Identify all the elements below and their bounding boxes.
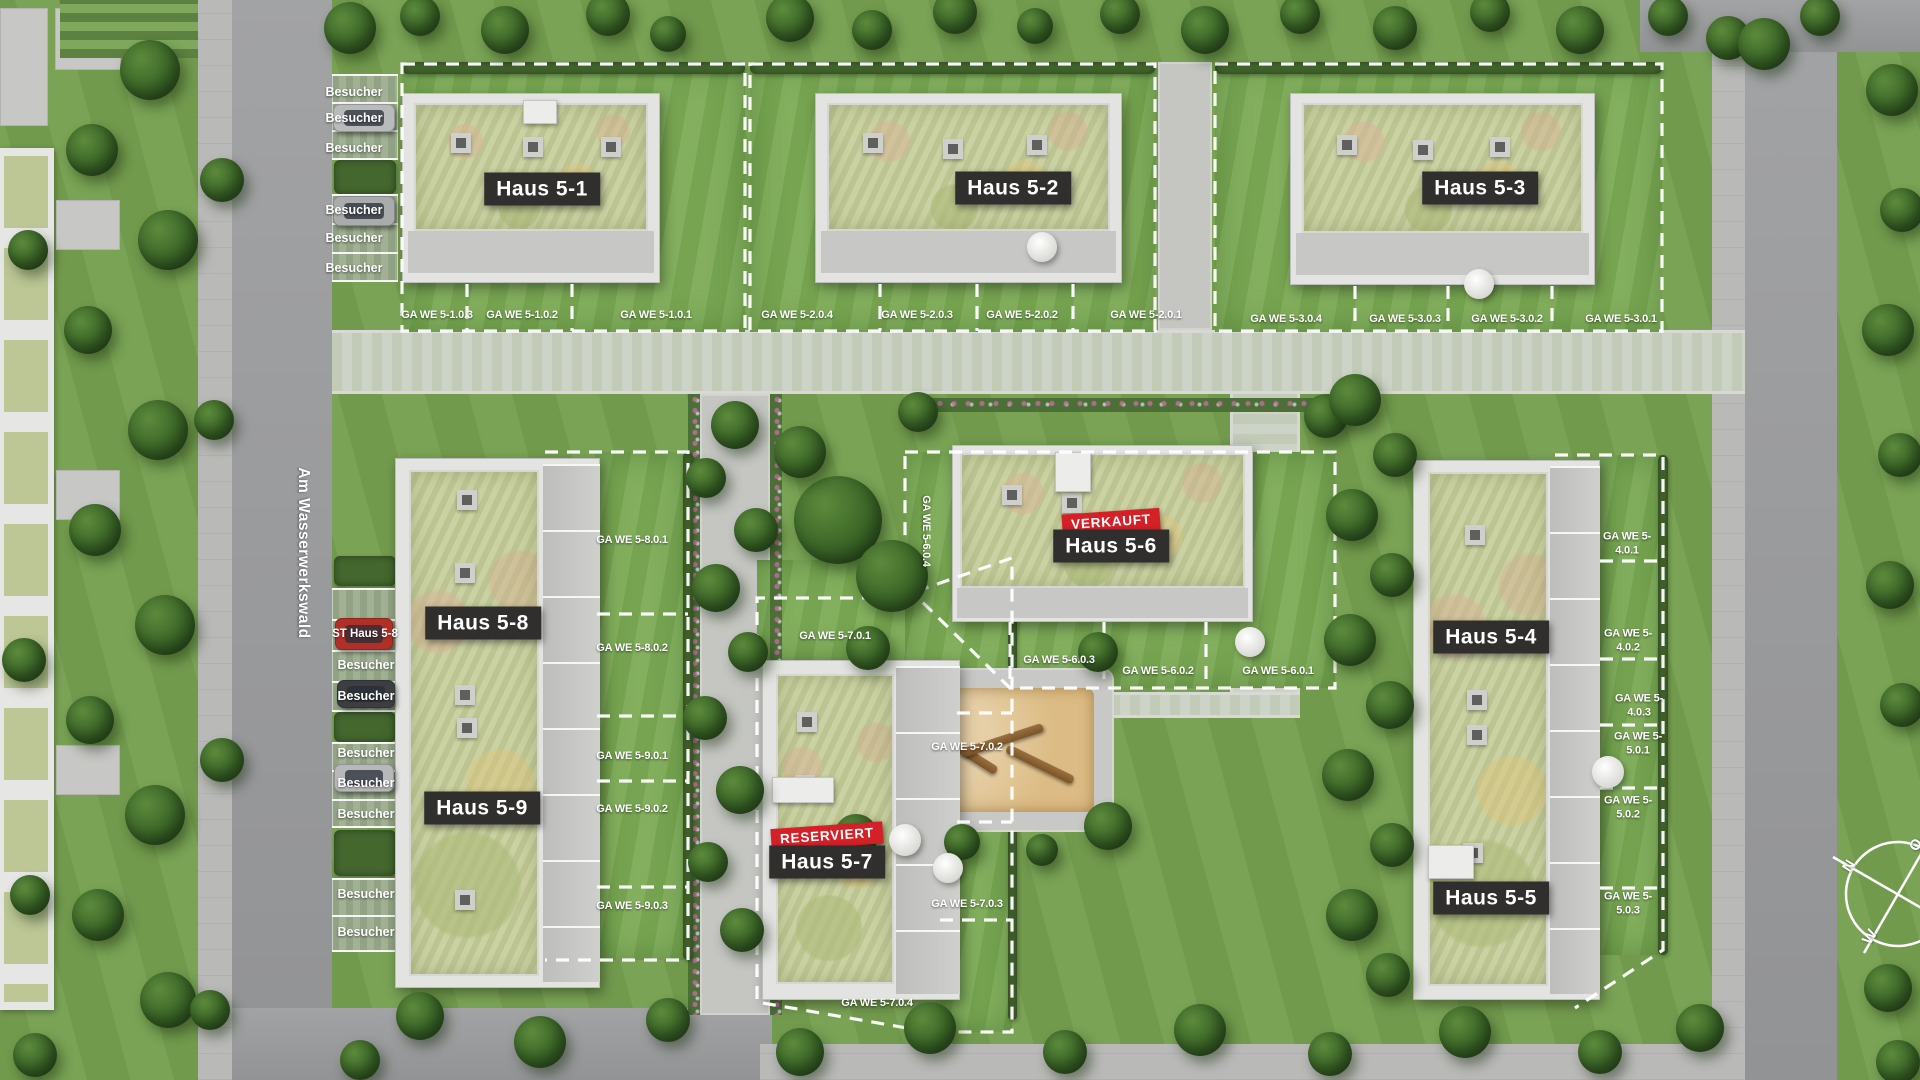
tree [190, 990, 230, 1030]
green-roof [827, 103, 1110, 231]
roof-vent [943, 139, 963, 159]
tree [13, 1033, 57, 1077]
tree [1876, 1040, 1920, 1080]
tree [1738, 18, 1790, 70]
tree [1439, 1006, 1491, 1058]
hedge [334, 556, 396, 586]
tree [1862, 304, 1914, 356]
tree [1324, 614, 1376, 666]
tree [200, 738, 244, 782]
tree [1373, 6, 1417, 50]
building-label-haus-5-3[interactable]: Haus 5-3 [1422, 172, 1538, 205]
roof-vent [1027, 135, 1047, 155]
site-plan: Haus 5-1 Haus 5-2 Haus 5-3 Haus 5-4 Haus… [0, 0, 1920, 1080]
tree [1866, 561, 1914, 609]
tree [1322, 749, 1374, 801]
parasol [889, 824, 921, 856]
tree [650, 16, 686, 52]
roof-vent [455, 563, 475, 583]
tree [688, 842, 728, 882]
tree [1676, 1004, 1724, 1052]
building-label-haus-5-6[interactable]: Haus 5-6 [1053, 530, 1169, 563]
garden-unit-label-5-6-0-1[interactable]: GA WE 5-6.0.1 [1242, 665, 1314, 679]
compass-north-label: N [1839, 857, 1859, 875]
sidewalk-east [1712, 0, 1745, 1080]
garden-unit-label-5-7-0-3[interactable]: GA WE 5-7.0.3 [931, 898, 1003, 912]
tree [734, 508, 778, 552]
roof-vent [1467, 690, 1487, 710]
garden-unit-label-5-6-0-2[interactable]: GA WE 5-6.0.2 [1122, 665, 1194, 679]
terrace-strip [1296, 233, 1589, 275]
tree [1373, 433, 1417, 477]
rooftop-structure [1428, 845, 1474, 879]
garden-unit-label-5-5-0-1[interactable]: GA WE 5-5.0.1 [1611, 730, 1665, 758]
building-label-haus-5-1[interactable]: Haus 5-1 [484, 173, 600, 206]
tree [1470, 0, 1510, 32]
tree [1326, 889, 1378, 941]
roof-vent [1490, 137, 1510, 157]
building-haus-5-4-5[interactable] [1413, 460, 1600, 1000]
rooftop-structure [772, 777, 834, 803]
rooftop-structure [523, 100, 557, 124]
roof-vent [457, 718, 477, 738]
tree [646, 998, 690, 1042]
tree [1174, 1004, 1226, 1056]
garden-unit-label-5-9-0-1[interactable]: GA WE 5-9.0.1 [596, 750, 668, 764]
garden-unit-label-5-2-0-2[interactable]: GA WE 5-2.0.2 [986, 309, 1058, 323]
building-label-haus-5-5[interactable]: Haus 5-5 [1433, 882, 1549, 915]
st-haus-5-8-space-label: ST Haus 5-8 [332, 628, 398, 640]
roof-vent [1002, 485, 1022, 505]
parasol [1464, 269, 1494, 299]
visitor-space-label: Besucher [326, 203, 383, 217]
footpath-north [1158, 62, 1212, 330]
roof-vent [601, 137, 621, 157]
visitor-space-label: Besucher [326, 111, 383, 125]
tree [1556, 6, 1604, 54]
roof-vent [451, 133, 471, 153]
tree [1026, 834, 1058, 866]
garden-unit-label-5-6-0-4[interactable]: GA WE 5-6.0.4 [918, 495, 932, 567]
compass-west-label: W [1859, 926, 1881, 947]
tree [1866, 64, 1918, 116]
tree [586, 0, 630, 36]
tree [125, 785, 185, 845]
hedge [334, 830, 396, 876]
building-haus-5-8-9[interactable] [395, 458, 600, 988]
garden-unit-label-5-9-0-2[interactable]: GA WE 5-9.0.2 [596, 803, 668, 817]
green-roof [1302, 103, 1583, 233]
garden-unit-label-5-1-0-2[interactable]: GA WE 5-1.0.2 [486, 309, 558, 323]
visitor-space-label: Besucher [338, 887, 395, 901]
garden-unit-label-5-5-0-3[interactable]: GA WE 5-5.0.3 [1601, 890, 1655, 918]
gardens-haus-5-8-9 [595, 452, 688, 960]
tree [200, 158, 244, 202]
hedge [334, 712, 396, 742]
hedge [1215, 62, 1662, 74]
tree [400, 0, 440, 36]
tree [716, 766, 764, 814]
tree [138, 210, 198, 270]
tree [1017, 8, 1053, 44]
tree [72, 889, 124, 941]
tree [711, 401, 759, 449]
building-label-haus-5-7[interactable]: Haus 5-7 [769, 846, 885, 879]
neighbour-pergola [56, 200, 120, 250]
neighbour-pergola [56, 745, 120, 795]
tree [728, 632, 768, 672]
parasol [1235, 627, 1265, 657]
tree [1370, 823, 1414, 867]
garden-unit-label-5-8-0-2[interactable]: GA WE 5-8.0.2 [596, 642, 668, 656]
tree [1880, 188, 1920, 232]
garden-unit-label-5-3-0-3[interactable]: GA WE 5-3.0.3 [1369, 313, 1441, 327]
tree [1366, 681, 1414, 729]
parasol [933, 853, 963, 883]
roof-vent [455, 685, 475, 705]
promenade [332, 330, 1745, 394]
garden-unit-label-5-1-0-3[interactable]: GA WE 5-1.0.3 [401, 309, 473, 323]
tree [1878, 433, 1920, 477]
garden-unit-label-5-7-0-2[interactable]: GA WE 5-7.0.2 [931, 741, 1003, 755]
garden-unit-label-5-1-0-1[interactable]: GA WE 5-1.0.1 [620, 309, 692, 323]
tree [1329, 374, 1381, 426]
visitor-space-label: Besucher [338, 925, 395, 939]
neighbour-patio [0, 8, 48, 126]
tree [64, 306, 112, 354]
visitor-space-label: Besucher [338, 658, 395, 672]
street-name-label: Am Wasserwerkswald [294, 467, 312, 638]
garden-unit-label-5-3-0-4[interactable]: GA WE 5-3.0.4 [1250, 313, 1322, 327]
building-label-haus-5-4[interactable]: Haus 5-4 [1433, 621, 1549, 654]
flowerbed-strip [905, 398, 1335, 412]
tree [692, 564, 740, 612]
garden-unit-label-5-6-0-3[interactable]: GA WE 5-6.0.3 [1023, 654, 1095, 668]
garden-unit-label-5-7-0-4[interactable]: GA WE 5-7.0.4 [841, 997, 913, 1011]
tree [481, 6, 529, 54]
tree [852, 10, 892, 50]
garden-unit-label-5-8-0-1[interactable]: GA WE 5-8.0.1 [596, 534, 668, 548]
roof-vent [1413, 140, 1433, 160]
hedge [402, 62, 745, 74]
terrace-strip [957, 588, 1248, 618]
tree [1280, 0, 1320, 34]
roof-vent [1337, 135, 1357, 155]
tree [1181, 6, 1229, 54]
tree [1326, 489, 1378, 541]
garden-unit-label-5-3-0-1[interactable]: GA WE 5-3.0.1 [1585, 313, 1657, 327]
tree [2, 638, 46, 682]
tree [898, 392, 938, 432]
roof-vent [1465, 525, 1485, 545]
tree [1864, 964, 1912, 1012]
tree [720, 908, 764, 952]
visitor-space-label: Besucher [338, 689, 395, 703]
visitor-space-label: Besucher [326, 85, 383, 99]
street-south [232, 1008, 772, 1080]
tree [120, 40, 180, 100]
tree [774, 426, 826, 478]
tree [776, 1028, 824, 1076]
visitor-space-label: Besucher [326, 141, 383, 155]
hedge [750, 62, 1155, 74]
hedge [334, 160, 396, 194]
compass-east-label: O [1906, 836, 1920, 855]
tree [1084, 802, 1132, 850]
roof-vent [863, 133, 883, 153]
tree [514, 1016, 566, 1068]
parasol [1592, 756, 1624, 788]
visitor-space-label: Besucher [326, 231, 383, 245]
tree [1366, 953, 1410, 997]
tree [140, 972, 196, 1028]
terrace-strip [543, 464, 600, 982]
garden-unit-label-5-3-0-2[interactable]: GA WE 5-3.0.2 [1471, 313, 1543, 327]
tree [766, 0, 814, 42]
tree [396, 992, 444, 1040]
tree [10, 875, 50, 915]
visitor-space-label: Besucher [326, 261, 383, 275]
tree [194, 400, 234, 440]
building-label-haus-5-9[interactable]: Haus 5-9 [424, 792, 540, 825]
tree [1880, 683, 1920, 727]
roof-vent [455, 890, 475, 910]
roof-vent [797, 712, 817, 732]
terrace-strip [1550, 466, 1600, 994]
tree [66, 124, 118, 176]
tree [8, 230, 48, 270]
garden-unit-label-5-4-0-2[interactable]: GA WE 5-4.0.2 [1601, 627, 1655, 655]
tree [933, 0, 977, 34]
garden-unit-label-5-2-0-1[interactable]: GA WE 5-2.0.1 [1110, 309, 1182, 323]
tree [1370, 553, 1414, 597]
roof-vent [457, 490, 477, 510]
tree [69, 504, 121, 556]
garden-unit-label-5-7-0-1[interactable]: GA WE 5-7.0.1 [799, 630, 871, 644]
parasol [1027, 232, 1057, 262]
tree [135, 595, 195, 655]
garden-unit-label-5-2-0-3[interactable]: GA WE 5-2.0.3 [881, 309, 953, 323]
tree [66, 696, 114, 744]
visitor-space-label: Besucher [338, 776, 395, 790]
tree [683, 696, 727, 740]
roof-vent [1467, 725, 1487, 745]
garden-unit-label-5-4-0-1[interactable]: GA WE 5-4.0.1 [1600, 530, 1654, 558]
tree [128, 400, 188, 460]
roof-vent [1062, 493, 1082, 513]
terrace-strip [408, 231, 654, 273]
garden-unit-label-5-5-0-2[interactable]: GA WE 5-5.0.2 [1601, 794, 1655, 822]
terrace-strip [821, 231, 1116, 273]
tree [324, 2, 376, 54]
garden-unit-label-5-9-0-3[interactable]: GA WE 5-9.0.3 [596, 900, 668, 914]
street-east [1745, 0, 1837, 1080]
tree [1043, 1030, 1087, 1074]
visitor-space-label: Besucher [338, 746, 395, 760]
garden-unit-label-5-4-0-3[interactable]: GA WE 5-4.0.3 [1612, 692, 1666, 720]
tree [340, 1040, 380, 1080]
building-label-haus-5-8[interactable]: Haus 5-8 [425, 607, 541, 640]
street-am-wasserwerkswald [232, 0, 332, 1080]
roof-vent [523, 137, 543, 157]
building-label-haus-5-2[interactable]: Haus 5-2 [955, 172, 1071, 205]
rooftop-structure [1055, 452, 1091, 492]
tree [686, 458, 726, 498]
tree [1308, 1032, 1352, 1076]
tree [1100, 0, 1140, 34]
garden-unit-label-5-2-0-4[interactable]: GA WE 5-2.0.4 [761, 309, 833, 323]
visitor-space-label: Besucher [338, 807, 395, 821]
tree [1578, 1030, 1622, 1074]
